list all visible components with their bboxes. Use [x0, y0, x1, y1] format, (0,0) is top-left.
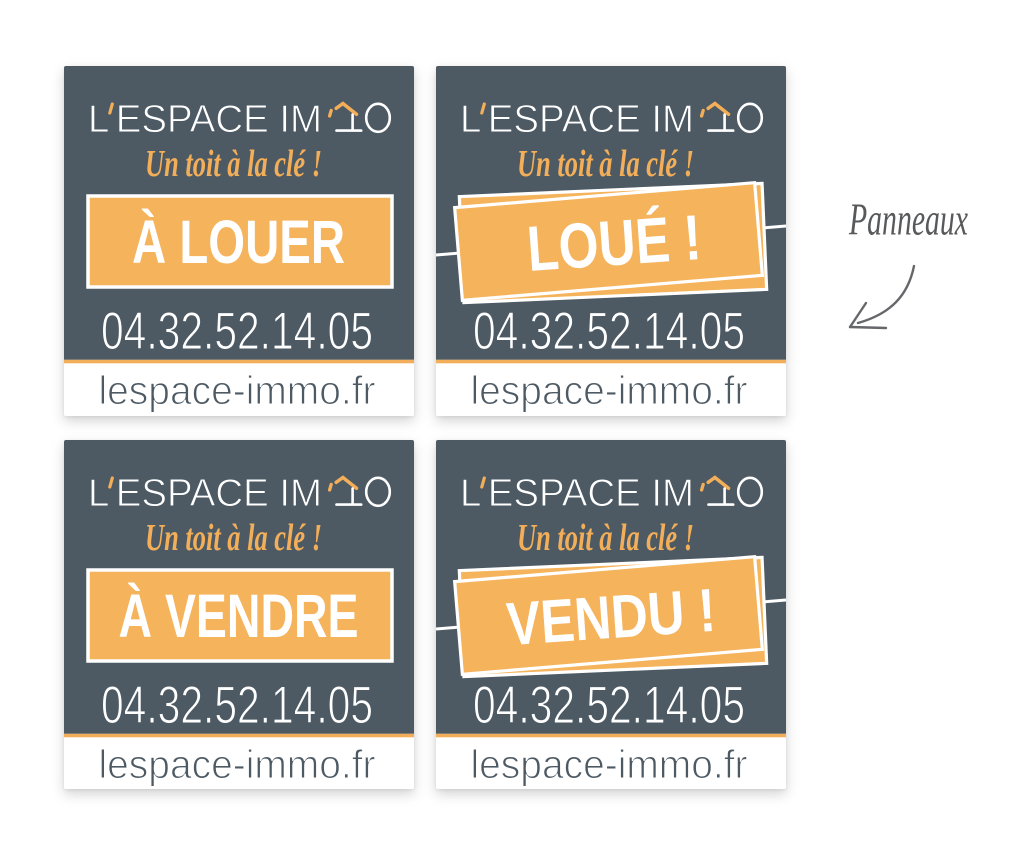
svg-text:Un toit à la clé !: Un toit à la clé !: [145, 517, 322, 559]
svg-text:L’ESPACE IM: L’ESPACE IM: [460, 98, 694, 141]
svg-text:04.32.52.14.05: 04.32.52.14.05: [101, 302, 373, 361]
svg-text:L’ESPACE IM: L’ESPACE IM: [460, 472, 694, 515]
svg-text:Un toit à la clé !: Un toit à la clé !: [517, 143, 694, 185]
svg-text:lespace-immo.fr: lespace-immo.fr: [99, 369, 376, 413]
svg-text:À LOUER: À LOUER: [132, 208, 345, 276]
svg-text:lespace-immo.fr: lespace-immo.fr: [471, 743, 748, 787]
svg-text:04.32.52.14.05: 04.32.52.14.05: [101, 676, 373, 735]
svg-text:L’ESPACE IM: L’ESPACE IM: [88, 472, 322, 515]
svg-text:Un toit à la clé !: Un toit à la clé !: [517, 517, 694, 559]
svg-text:Panneaux: Panneaux: [848, 194, 968, 245]
svg-text:L’ESPACE IM: L’ESPACE IM: [88, 98, 322, 141]
svg-text:À VENDRE: À VENDRE: [119, 582, 359, 650]
svg-text:lespace-immo.fr: lespace-immo.fr: [471, 369, 748, 413]
svg-text:Un toit à la clé !: Un toit à la clé !: [145, 143, 322, 185]
svg-text:VENDU !: VENDU !: [504, 576, 717, 658]
svg-text:04.32.52.14.05: 04.32.52.14.05: [473, 302, 745, 361]
svg-text:lespace-immo.fr: lespace-immo.fr: [99, 743, 376, 787]
svg-text:LOUÉ !: LOUÉ !: [525, 201, 704, 285]
svg-text:04.32.52.14.05: 04.32.52.14.05: [473, 676, 745, 735]
